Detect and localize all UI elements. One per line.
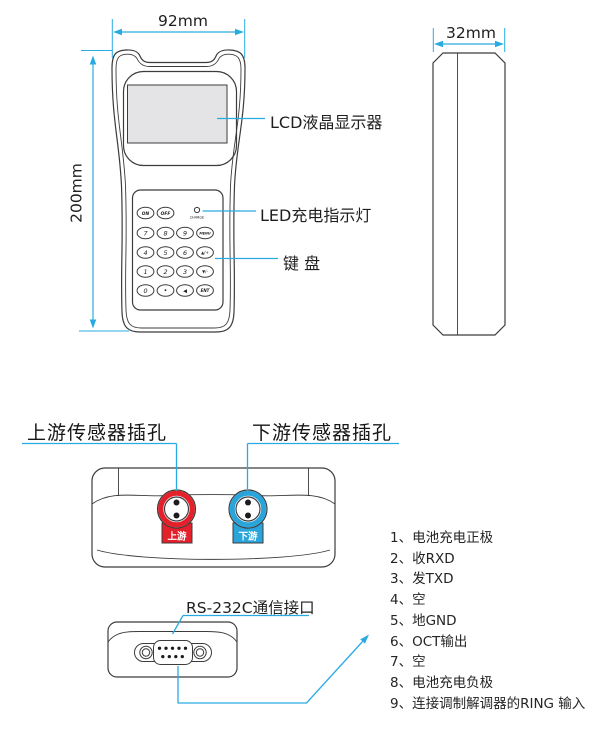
charge-led-label: CHARGE bbox=[190, 216, 205, 220]
dimension-height-front: 200mm bbox=[68, 163, 86, 224]
pinout-item-8: 8、电池充电负极 bbox=[390, 673, 585, 694]
key-ent: ENT bbox=[197, 285, 214, 296]
key-8: 8 bbox=[157, 227, 174, 238]
key-left-arrow: ◀ bbox=[177, 285, 194, 296]
key-2: 2 bbox=[157, 266, 174, 277]
upstream-connector: 上游 bbox=[158, 490, 196, 543]
key-dot: · bbox=[157, 285, 174, 297]
upstream-sensor-jack-label: 上游传感器插孔 bbox=[27, 418, 167, 445]
charge-led bbox=[194, 207, 199, 212]
lcd-display-label: LCD液晶显示器 bbox=[270, 109, 382, 133]
side-body-outline bbox=[433, 53, 505, 335]
lcd-screen bbox=[128, 85, 228, 143]
upstream-tab-label: 上游 bbox=[167, 531, 187, 543]
led-charge-label: LED充电指示灯 bbox=[260, 202, 371, 226]
key-3: 3 bbox=[177, 266, 194, 277]
key-up-plus: ▲/+ bbox=[197, 247, 214, 258]
downstream-pin-bottom bbox=[245, 513, 251, 519]
key-off: OFF bbox=[157, 207, 174, 218]
pinout-item-3: 3、发TXD bbox=[390, 569, 585, 590]
upstream-pin-top bbox=[174, 500, 180, 506]
pinout-item-2: 2、收RXD bbox=[390, 549, 585, 570]
downstream-pin-top bbox=[245, 500, 251, 506]
svg-text:9: 9 bbox=[183, 229, 187, 237]
key-4: 4 bbox=[137, 247, 154, 258]
dim-92-arrow-left bbox=[113, 29, 122, 36]
dim-200-arrow-top bbox=[90, 56, 97, 65]
svg-text:OFF: OFF bbox=[161, 211, 171, 217]
db9-shell bbox=[154, 641, 193, 665]
flowmeter-diagram-page: ON OFF CHARGE 7 8 9 MENU 4 5 6 ▲/+ 1 2 3… bbox=[0, 0, 600, 732]
key-7: 7 bbox=[137, 227, 154, 238]
svg-text:1: 1 bbox=[143, 268, 147, 276]
key-0: 0 bbox=[137, 285, 154, 296]
svg-text:MENU: MENU bbox=[199, 232, 211, 236]
top-view-contour bbox=[92, 495, 335, 504]
dim-92-arrow-right bbox=[235, 29, 244, 36]
key-menu: MENU bbox=[197, 227, 214, 238]
top-view-body bbox=[92, 468, 335, 567]
svg-text:5: 5 bbox=[163, 249, 167, 257]
pinout-item-9: 9、连接调制解调器的RING 输入 bbox=[390, 694, 585, 715]
bottom-view-drawing bbox=[108, 622, 237, 677]
db9-connector bbox=[135, 641, 212, 665]
key-9: 9 bbox=[177, 227, 194, 238]
svg-text:·: · bbox=[164, 286, 167, 296]
svg-text:8: 8 bbox=[163, 229, 167, 237]
rs232-port-label: RS-232C通信接口 bbox=[186, 596, 315, 618]
keypad-keys: ON OFF CHARGE 7 8 9 MENU 4 5 6 ▲/+ 1 2 3… bbox=[137, 207, 213, 296]
top-view-drawing: 上游 下游 bbox=[92, 468, 335, 567]
svg-text:ENT: ENT bbox=[201, 288, 210, 293]
db9-screw-right bbox=[194, 646, 206, 658]
svg-text:◀: ◀ bbox=[183, 289, 187, 295]
svg-text:▲/+: ▲/+ bbox=[201, 250, 209, 255]
side-view-drawing bbox=[433, 53, 505, 335]
top-view-bottom-arc bbox=[97, 550, 330, 559]
key-down-minus: ▼/- bbox=[197, 266, 214, 277]
key-5: 5 bbox=[157, 247, 174, 258]
downstream-connector: 下游 bbox=[229, 490, 267, 543]
pinout-item-6: 6、OCT输出 bbox=[390, 632, 585, 653]
svg-text:7: 7 bbox=[143, 229, 147, 237]
svg-text:2: 2 bbox=[163, 268, 167, 276]
pinout-item-5: 5、地GND bbox=[390, 611, 585, 632]
dim-200-arrow-bottom bbox=[90, 320, 97, 329]
key-1: 1 bbox=[137, 266, 154, 277]
pinout-item-1: 1、电池充电正极 bbox=[390, 528, 585, 549]
key-6: 6 bbox=[177, 247, 194, 258]
keypad-label: 键 盘 bbox=[283, 250, 320, 274]
dimension-width-front: 92mm bbox=[158, 12, 204, 30]
db9-screw-left bbox=[140, 646, 152, 658]
key-on: ON bbox=[137, 207, 154, 218]
pinout-item-4: 4、空 bbox=[390, 590, 585, 611]
dimension-lines bbox=[79, 19, 505, 331]
svg-text:3: 3 bbox=[183, 268, 187, 276]
svg-text:4: 4 bbox=[143, 249, 147, 257]
dimension-width-side: 32mm bbox=[446, 24, 492, 42]
svg-text:▼/-: ▼/- bbox=[202, 269, 208, 274]
svg-text:ON: ON bbox=[142, 211, 150, 217]
dim-32-arrow-left bbox=[434, 41, 443, 48]
dim-32-arrow-right bbox=[495, 41, 504, 48]
db9-pinout-list: 1、电池充电正极 2、收RXD 3、发TXD 4、空 5、地GND 6、OCT输… bbox=[390, 528, 585, 714]
downstream-sensor-jack-label: 下游传感器插孔 bbox=[252, 418, 392, 445]
svg-text:6: 6 bbox=[183, 249, 187, 257]
downstream-tab-label: 下游 bbox=[238, 531, 258, 543]
pinout-item-7: 7、空 bbox=[390, 652, 585, 673]
svg-text:0: 0 bbox=[143, 287, 147, 295]
upstream-pin-bottom bbox=[174, 513, 180, 519]
